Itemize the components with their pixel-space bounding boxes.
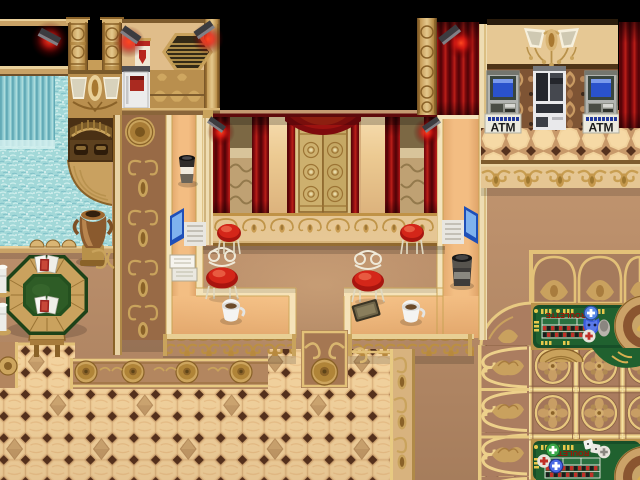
svg-text:ATM: ATM (490, 121, 515, 135)
svg-text:ROULETTE: ROULETTE (546, 311, 586, 320)
